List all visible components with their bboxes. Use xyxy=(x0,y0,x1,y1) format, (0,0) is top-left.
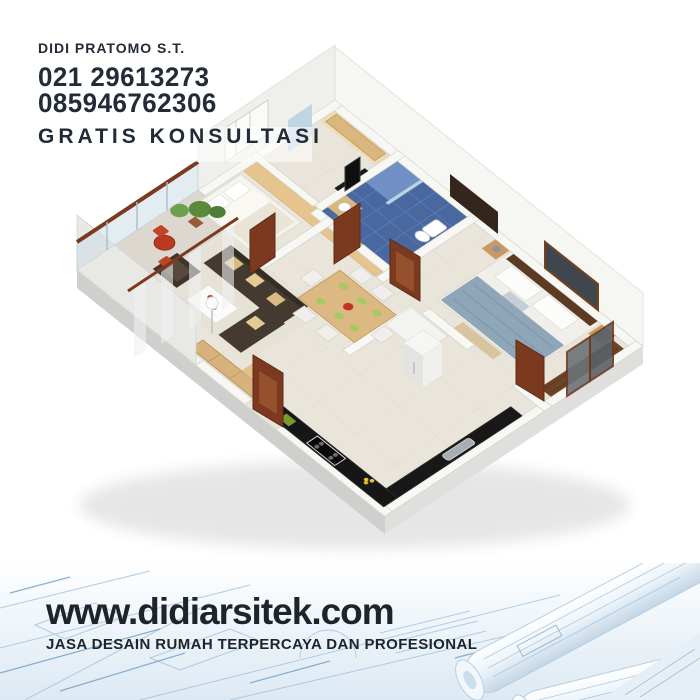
architect-name: DIDI PRATOMO S.T. xyxy=(38,40,323,56)
offer-text: GRATIS KONSULTASI xyxy=(38,125,323,149)
footer-texts: www.didiarsitek.com JASA DESAIN RUMAH TE… xyxy=(46,563,477,653)
phone-mobile: 085946762306 xyxy=(38,90,312,116)
website-url: www.didiarsitek.com xyxy=(46,593,477,631)
contact-block: DIDI PRATOMO S.T. 021 29613273 085946762… xyxy=(38,40,323,149)
advertisement-canvas: DIDI PRATOMO S.T. 021 29613273 085946762… xyxy=(0,0,700,700)
footer-strip: www.didiarsitek.com JASA DESAIN RUMAH TE… xyxy=(0,563,700,700)
tagline: JASA DESAIN RUMAH TERPERCAYA DAN PROFESI… xyxy=(46,636,477,653)
phone-primary: 021 29613273 xyxy=(38,64,312,90)
